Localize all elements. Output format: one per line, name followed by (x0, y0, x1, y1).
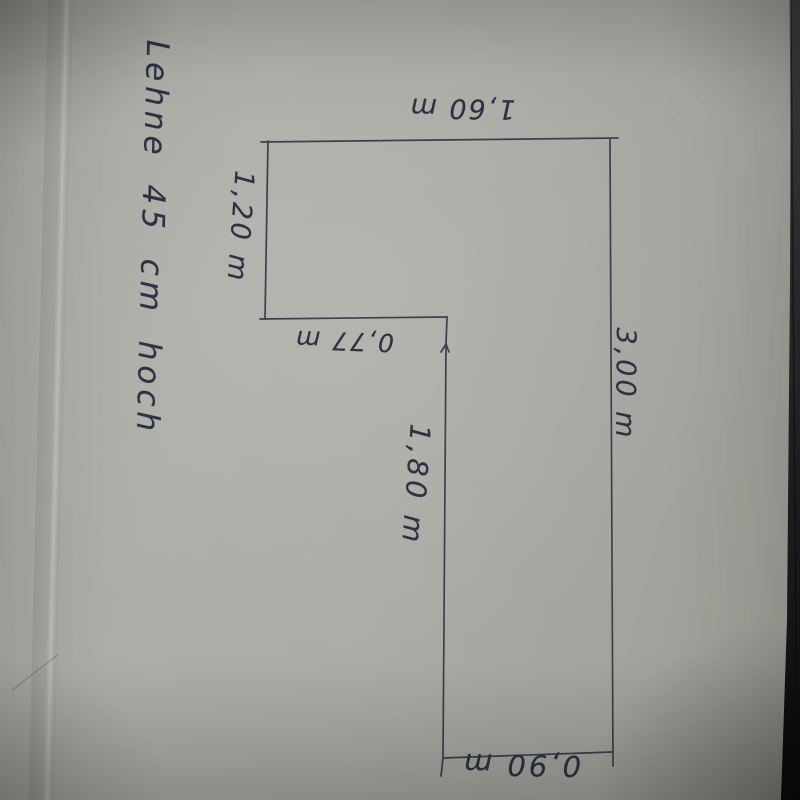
dimension-label-right: 3,00 m (609, 327, 641, 440)
left-edge (265, 141, 268, 319)
bottom-left-tick (441, 758, 443, 776)
step-edge (260, 317, 447, 319)
paper-photo: Lehne 45 cm hoch 1,60 m 1,20 m 0,77 m 3,… (0, 0, 800, 800)
dimension-label-step: 0,77 m (294, 325, 395, 357)
dimension-label-top: 1,60 m (408, 92, 516, 125)
right-edge (610, 139, 613, 766)
middle-edge (443, 317, 447, 758)
sketch-outline (0, 0, 800, 800)
middle-kink (441, 344, 449, 352)
top-edge (261, 138, 618, 142)
dimension-label-bottom: 0,90 m (461, 747, 582, 783)
